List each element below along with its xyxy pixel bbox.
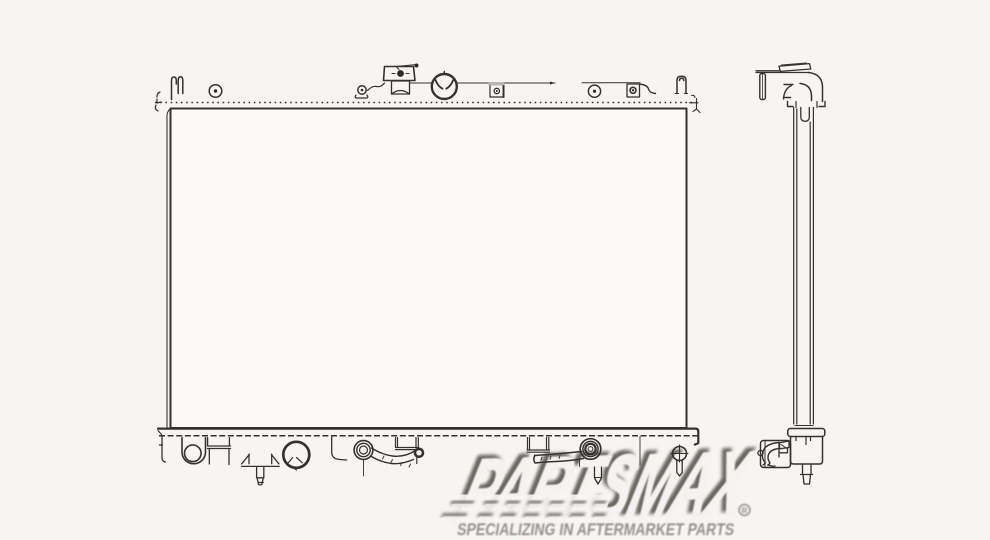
svg-text:SPECIALIZING IN AFTERMARKET PA: SPECIALIZING IN AFTERMARKET PARTS <box>456 520 736 539</box>
svg-text:R: R <box>742 506 748 515</box>
